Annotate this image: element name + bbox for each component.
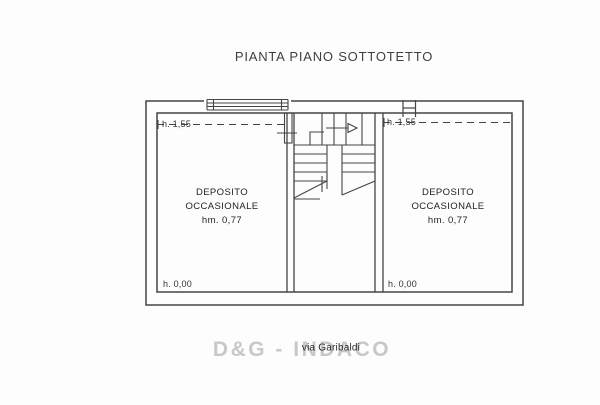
staircase: [277, 113, 375, 199]
ceiling-height-left: h. 1,55: [162, 119, 191, 129]
room-name-line1: DEPOSITO: [185, 186, 258, 200]
flue: [403, 100, 416, 117]
floor-height-left: h. 0,00: [163, 279, 192, 289]
room-mid-height: hm. 0,77: [185, 214, 258, 228]
street-label: via Garibaldi: [302, 343, 360, 354]
room-name-line2: OCCASIONALE: [185, 200, 258, 214]
room-mid-height: hm. 0,77: [411, 214, 484, 228]
room-name-line2: OCCASIONALE: [411, 200, 484, 214]
stair-direction-arrow: [326, 124, 357, 133]
window: [204, 97, 291, 112]
floor-plan-document: PIANTA PIANO SOTTOTETTO DEPOSITO OCCASIO…: [0, 0, 600, 405]
plan-title: PIANTA PIANO SOTTOTETTO: [235, 49, 433, 64]
ceiling-height-right: h. 1,55: [387, 117, 416, 127]
interior-walls: [287, 113, 383, 292]
room-name-line1: DEPOSITO: [411, 186, 484, 200]
floor-height-right: h. 0,00: [388, 279, 417, 289]
stair-wall-stub: [285, 113, 293, 143]
room-label-left: DEPOSITO OCCASIONALE hm. 0,77: [185, 186, 258, 228]
room-label-right: DEPOSITO OCCASIONALE hm. 0,77: [411, 186, 484, 228]
